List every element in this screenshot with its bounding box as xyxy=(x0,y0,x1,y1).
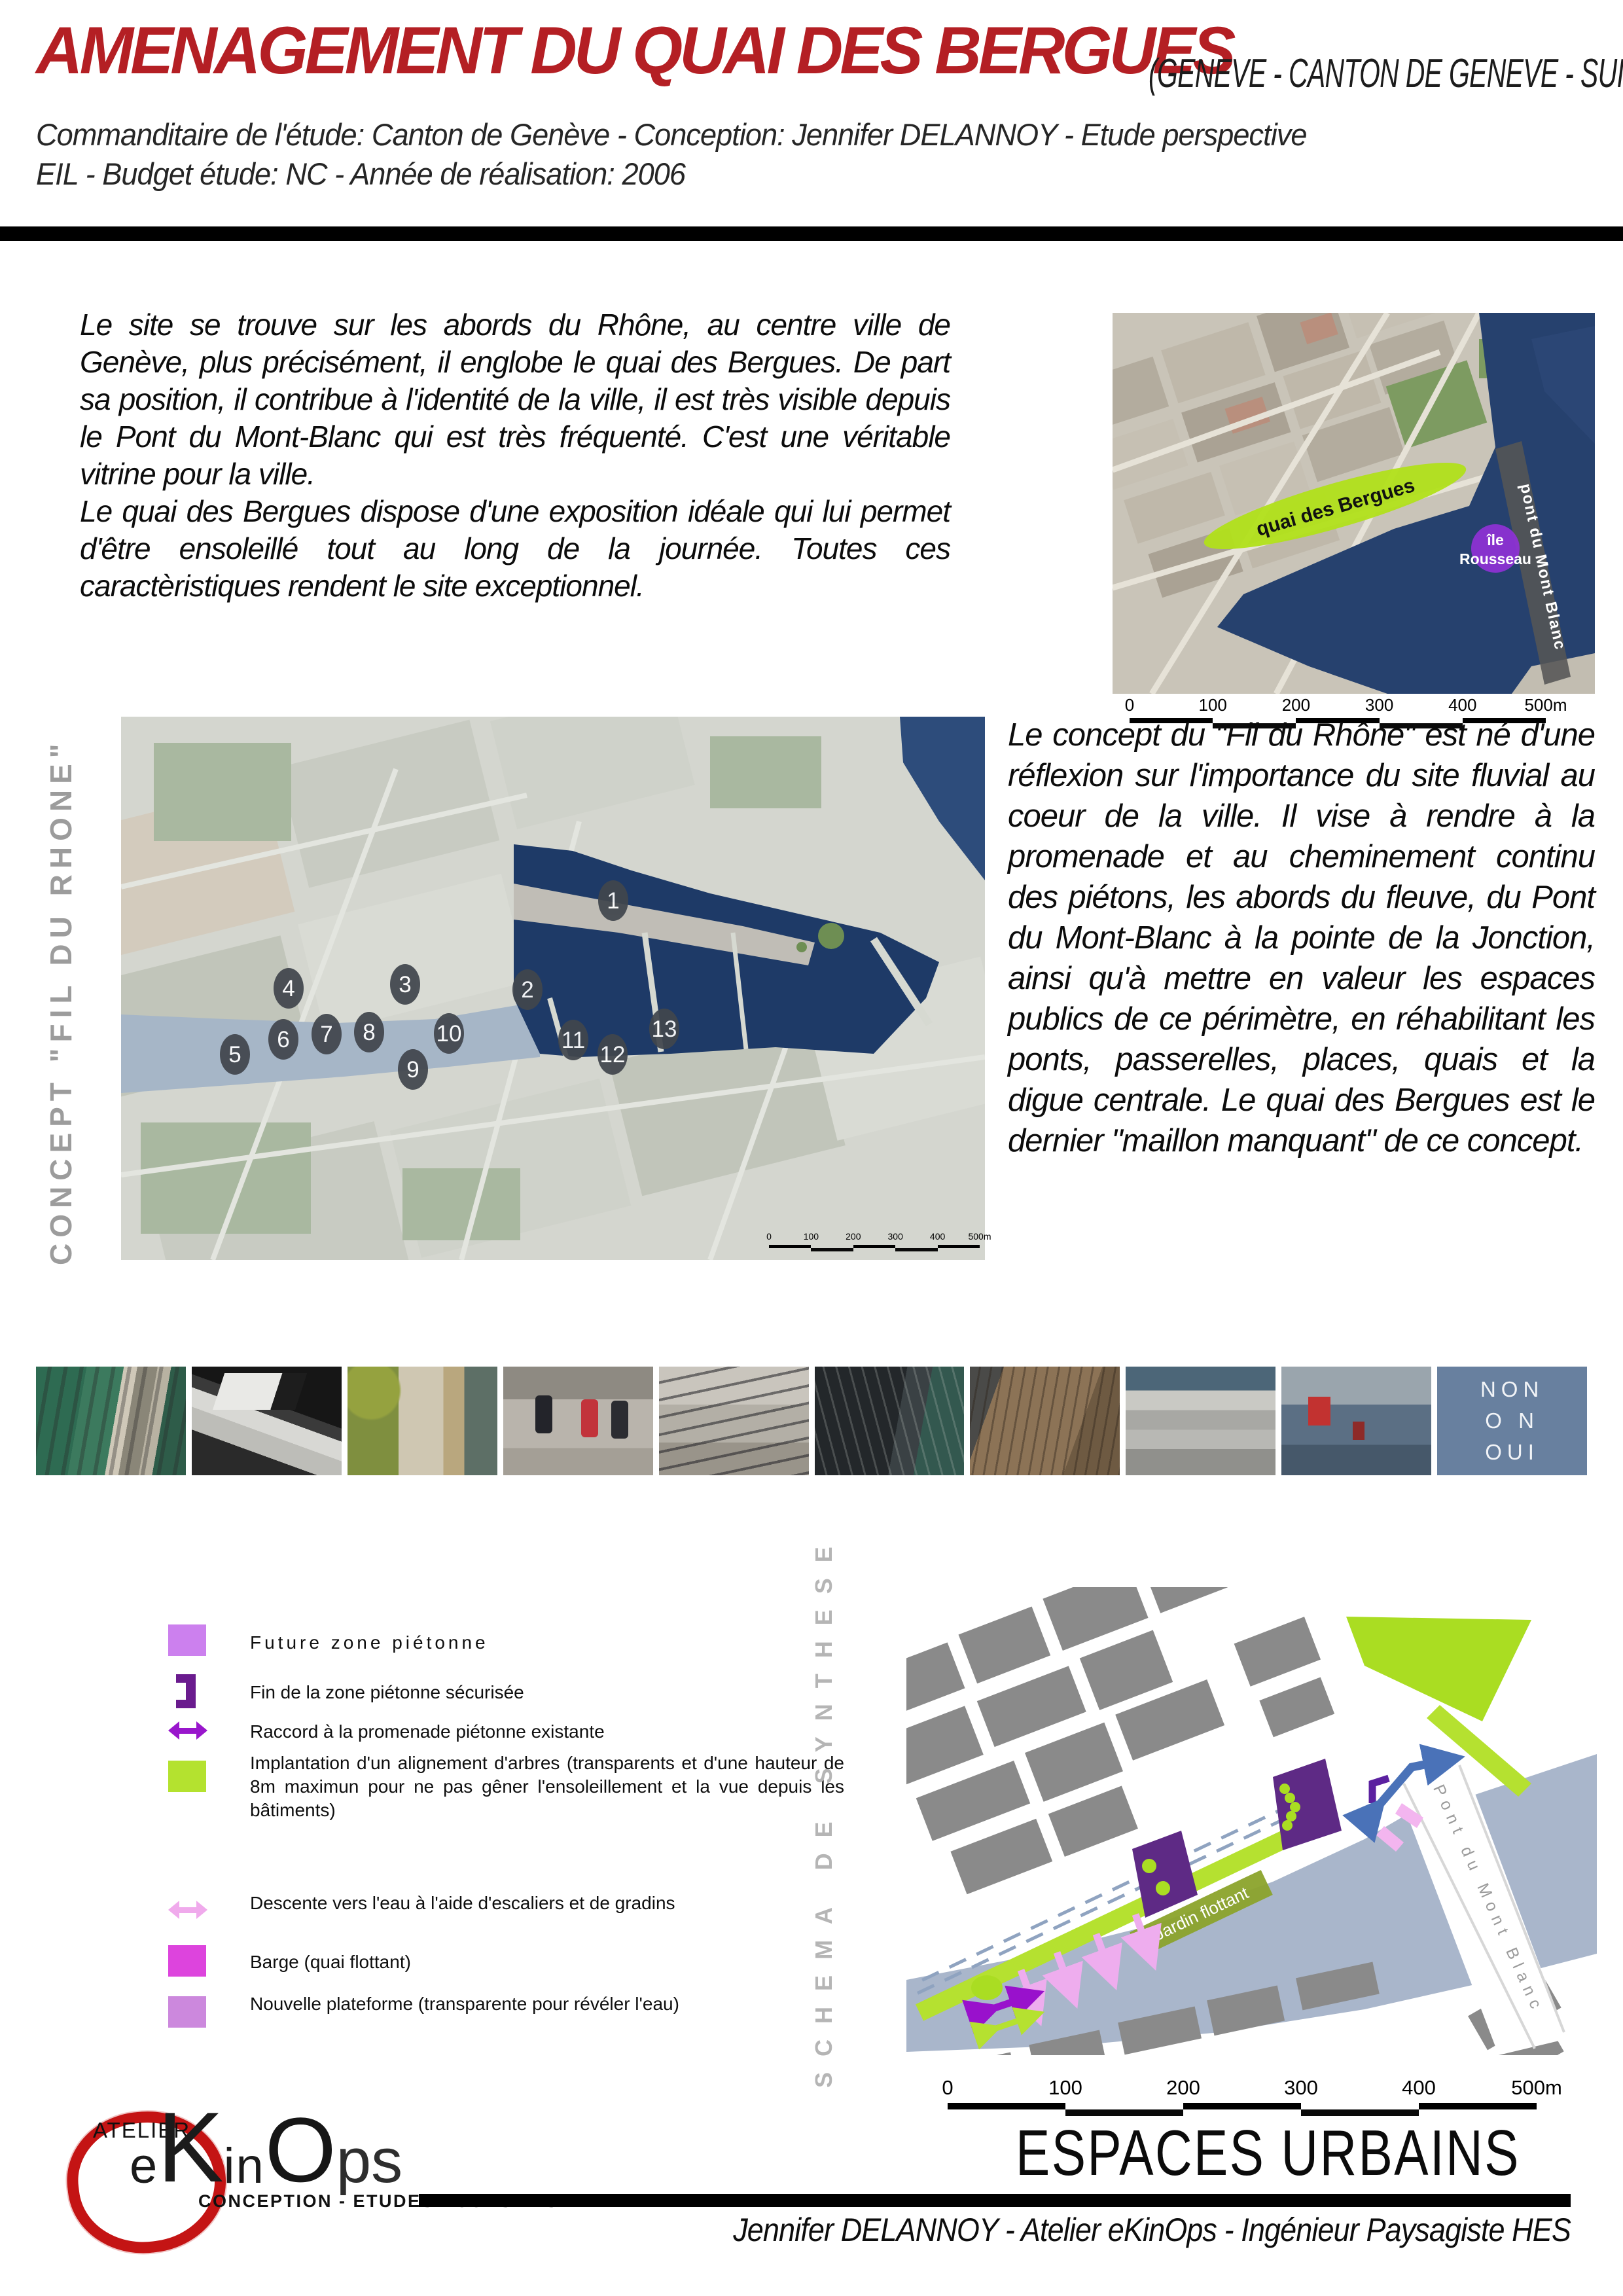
sign-line-2: O N xyxy=(1485,1405,1539,1437)
poster-page: AMENAGEMENT DU QUAI DES BERGUES (GENEVE … xyxy=(0,0,1623,2296)
scale-label: 400 xyxy=(1402,2076,1436,2100)
map-marker-7: 7 xyxy=(312,1014,342,1054)
subtitle-line-1: Commanditaire de l'étude: Canton de Genè… xyxy=(36,117,1307,153)
scale-label: 500m xyxy=(1511,2076,1562,2100)
scale-label: 300 xyxy=(888,1231,903,1242)
future-zone-swatch xyxy=(168,1624,206,1656)
legend-label: Barge (quai flottant) xyxy=(250,1945,844,1974)
scale-segment xyxy=(853,1245,895,1248)
scale-label: 100 xyxy=(1198,695,1226,715)
scale-label: 500m xyxy=(1524,695,1567,715)
page-title: AMENAGEMENT DU QUAI DES BERGUES xyxy=(36,17,1233,84)
scale-label: 0 xyxy=(942,2076,953,2100)
legend-label: Implantation d'un alignement d'arbres (t… xyxy=(250,1751,844,1822)
synthesis-vertical-label: SCHEMA DE SYNTHESE xyxy=(810,1517,853,2088)
map-marker-5: 5 xyxy=(220,1034,250,1075)
photo-boardwalk xyxy=(970,1367,1120,1475)
photo-model xyxy=(192,1367,342,1475)
legend-label: Raccord à la promenade piétonne existant… xyxy=(250,1717,844,1744)
photo-gradins xyxy=(1126,1367,1275,1475)
section-title-espaces-urbains: ESPACES URBAINS xyxy=(1016,2121,1520,2185)
scale-label: 300 xyxy=(1284,2076,1318,2100)
logo-letters-ps: ps xyxy=(336,2134,402,2189)
map-marker-11: 11 xyxy=(558,1020,588,1060)
scale-segment xyxy=(1301,2109,1419,2116)
scale-label: 100 xyxy=(1048,2076,1082,2100)
concept-paragraph: Le concept du "Fil du Rhône" est né d'un… xyxy=(1008,715,1595,1161)
divider-bar-footer xyxy=(419,2194,1571,2207)
scale-segment xyxy=(1065,2109,1183,2116)
map-marker-13: 13 xyxy=(649,1009,679,1049)
logo-letter-o: O xyxy=(265,2111,336,2189)
map-marker-8: 8 xyxy=(354,1012,384,1052)
legend-label: Nouvelle plateforme (transparente pour r… xyxy=(250,1992,844,2016)
barge-swatch xyxy=(168,1945,206,1977)
photo-walkway-railing xyxy=(659,1367,809,1475)
map-marker-12: 12 xyxy=(597,1034,628,1075)
legend-item-barge: Barge (quai flottant) xyxy=(164,1945,844,1977)
pink-double-arrow-icon xyxy=(168,1901,207,1919)
logo-letter-k: K xyxy=(157,2107,223,2189)
map-marker-4: 4 xyxy=(274,968,304,1009)
scale-segment xyxy=(938,1245,980,1248)
location-aerial-map: quai des Bergues pont du Mont Blanc île … xyxy=(1113,313,1595,694)
scale-segment xyxy=(895,1248,937,1251)
map-marker-2: 2 xyxy=(512,969,543,1010)
scale-segment xyxy=(769,1245,811,1248)
scale-segment xyxy=(1183,2103,1301,2109)
scale-label: 400 xyxy=(930,1231,945,1242)
ile-rousseau-label-2: Rousseau xyxy=(1459,550,1531,567)
scale-label: 200 xyxy=(846,1231,861,1242)
legend-label: Fin de la zone piétonne sécurisée xyxy=(250,1674,844,1704)
legend-item-descente: Descente vers l'eau à l'aide d'escaliers… xyxy=(164,1892,844,1919)
location-aerial-graphic: quai des Bergues pont du Mont Blanc île … xyxy=(1113,313,1595,694)
concept-vertical-label: CONCEPT "FIL DU RHONE" xyxy=(43,717,90,1265)
scale-segment xyxy=(948,2103,1065,2109)
page-title-location: (GENEVE - CANTON DE GENEVE - SUISSE) xyxy=(1149,54,1623,94)
photo-non-oui-sign: NON O N OUI xyxy=(1437,1367,1587,1475)
map-marker-6: 6 xyxy=(268,1019,298,1060)
double-arrow-icon xyxy=(168,1721,207,1740)
header: AMENAGEMENT DU QUAI DES BERGUES (GENEVE … xyxy=(36,17,1620,96)
map-marker-1: 1 xyxy=(598,880,628,921)
photo-waterside xyxy=(1281,1367,1431,1475)
map-marker-9: 9 xyxy=(398,1049,428,1090)
scale-label: 400 xyxy=(1448,695,1476,715)
scale-label: 0 xyxy=(1125,695,1134,715)
trees-swatch xyxy=(168,1761,206,1792)
intro-paragraph: Le site se trouve sur les abords du Rhôn… xyxy=(80,306,950,605)
footer-credit: Jennifer DELANNOY - Atelier eKinOps - In… xyxy=(733,2211,1571,2249)
concept-map: 12345678910111213 0100200300400500m xyxy=(121,717,985,1260)
legend-label: Descente vers l'eau à l'aide d'escaliers… xyxy=(250,1892,844,1915)
photo-quai-trees xyxy=(348,1367,497,1475)
legend-item-fin-zone: Fin de la zone piétonne sécurisée xyxy=(164,1674,844,1708)
legend-label: Future zone piétonne xyxy=(250,1624,844,1655)
ile-rousseau-label-1: île xyxy=(1486,531,1504,548)
scale-segment xyxy=(1419,2103,1537,2109)
scale-label: 200 xyxy=(1166,2076,1200,2100)
sign-line-1: NON xyxy=(1480,1374,1544,1405)
logo-letter-e: e xyxy=(130,2144,157,2189)
end-zone-bracket-icon xyxy=(176,1674,196,1708)
scale-label: 100 xyxy=(804,1231,819,1242)
scale-label: 300 xyxy=(1365,695,1393,715)
scale-label: 500m xyxy=(968,1231,991,1242)
synthesis-map: Jardin flottant Pont du Mont Blanc xyxy=(906,1587,1597,2055)
scale-label: 0 xyxy=(766,1231,772,1242)
plateforme-swatch xyxy=(168,1996,206,2028)
sign-line-3: OUI xyxy=(1485,1437,1539,1468)
concept-map-scalebar: 0100200300400500m xyxy=(769,1231,980,1251)
legend-item-future-zone: Future zone piétonne xyxy=(164,1624,844,1656)
scale-label: 200 xyxy=(1282,695,1310,715)
scale-segment xyxy=(811,1248,853,1251)
legend-item-raccord: Raccord à la promenade piétonne existant… xyxy=(164,1717,844,1744)
photo-footbridge xyxy=(36,1367,186,1475)
map-marker-3: 3 xyxy=(390,964,420,1005)
map-marker-10: 10 xyxy=(434,1013,464,1054)
legend-item-plateforme: Nouvelle plateforme (transparente pour r… xyxy=(164,1992,844,2028)
photo-pedestrians xyxy=(503,1367,653,1475)
photo-dark-pier xyxy=(815,1367,965,1475)
synthesis-map-graphic: Jardin flottant Pont du Mont Blanc xyxy=(906,1587,1597,2055)
logo-letters-in: in xyxy=(224,2144,265,2189)
legend-item-arbres: Implantation d'un alignement d'arbres (t… xyxy=(164,1751,844,1822)
logo-ekinops: e K in O ps xyxy=(130,2093,402,2189)
concept-map-graphic xyxy=(121,717,985,1260)
synthesis-map-scalebar: 0100200300400500m xyxy=(948,2076,1537,2116)
subtitle-line-2: EIL - Budget étude: NC - Année de réalis… xyxy=(36,156,685,192)
divider-bar-top xyxy=(0,226,1623,241)
photo-strip: NON O N OUI xyxy=(36,1367,1587,1475)
